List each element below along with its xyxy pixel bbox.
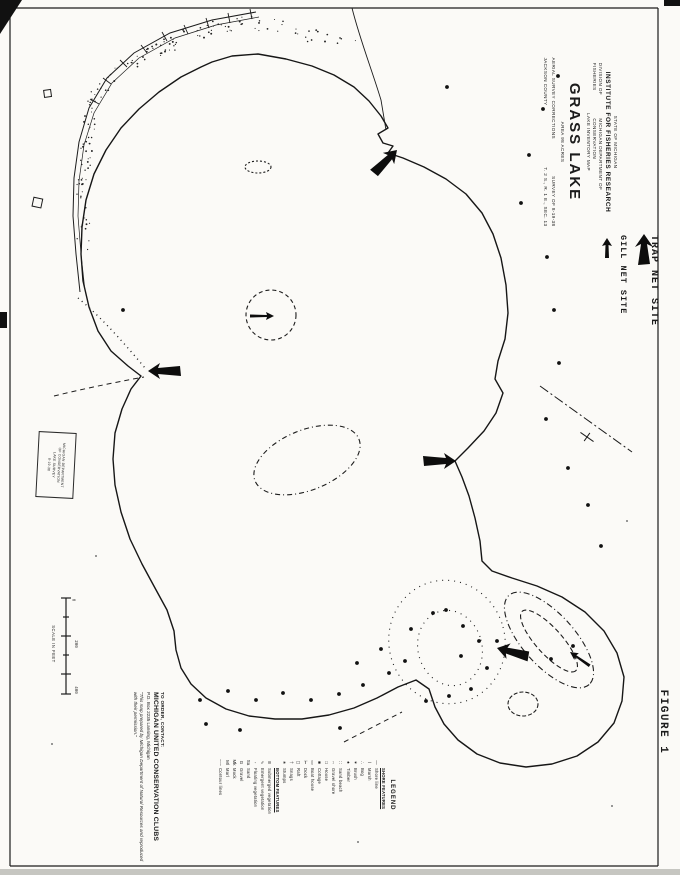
trap-net-arrow-1 — [368, 144, 403, 179]
legend-symbol: –·– — [217, 757, 224, 768]
section-line — [540, 386, 632, 452]
legend-item: ∷Sand beach — [337, 757, 344, 833]
legend-label: Bog — [359, 768, 366, 776]
legend-label: Snags — [288, 768, 295, 781]
stream-line — [352, 8, 386, 130]
legend-label: Marl — [224, 768, 231, 777]
legend-item: ∗Stumps — [281, 757, 288, 833]
legend-item: ■Cottage — [316, 757, 323, 833]
mucc-address: P.O. Box 2235 Lansing, Michigan — [146, 692, 151, 862]
legend-label: Contour lines — [217, 768, 224, 795]
dept2-line: MICHIGAN DEPARTMENT OF CONSERVATION — [591, 118, 603, 221]
trap-net-arrow-3 — [423, 453, 456, 469]
legend-label: Boat house — [309, 768, 316, 791]
gill-net-site-label: GILL NET SITE — [618, 235, 628, 314]
legend-symbol: ♠ — [344, 757, 351, 768]
legend-label: BOTTOM FEATURES — [274, 768, 281, 813]
legend-label: House — [323, 768, 330, 781]
legend-label: Submerged vegetation — [266, 768, 273, 814]
county-line: JACKSON COUNTY — [542, 58, 548, 106]
legend-item: ⊢Dock — [302, 757, 309, 833]
scale-label-400: 400 — [73, 686, 77, 694]
legend-item: BOTTOM FEATURES — [274, 757, 281, 833]
credit-note: "This map prepared by Michigan Departmen… — [133, 692, 144, 862]
mucc-name: MICHIGAN UNITED CONSERVATION CLUBS — [152, 692, 159, 862]
net-site-key: TRAP NET SITE GILL NET SITE — [599, 235, 661, 355]
depth-contours — [244, 161, 609, 717]
legend-item: †Snags — [288, 757, 295, 833]
figure-label: FIGURE 1 — [655, 686, 669, 758]
institute-line: INSTITUTE FOR FISHERIES RESEARCH — [603, 72, 612, 213]
legend-symbol: ■ — [316, 757, 323, 768]
legend-block: LEGEND SHORE FEATURES—Shore line⌇Marsh∴B… — [195, 757, 395, 833]
map-type-line: LAKE INVENTORY MAP — [585, 113, 591, 171]
legend-item: ▭Boat house — [309, 757, 316, 833]
trap-net-arrow-4 — [495, 640, 531, 664]
legend-item: MkMuck — [231, 757, 238, 833]
legend-label: Floating vegetation — [252, 768, 259, 807]
legend-symbol: ⌇ — [366, 757, 373, 768]
legend-symbol: Sa — [245, 757, 252, 768]
legend-symbol: † — [288, 757, 295, 768]
division-line: DIVISION OF FISHERIES — [591, 63, 603, 119]
legend-title: LEGEND — [389, 757, 395, 833]
legend-label: Raft — [295, 768, 302, 776]
legend-label: Emergent vegetation — [259, 768, 266, 810]
legend-symbol: ∷ — [337, 757, 344, 768]
legend-symbol: ⊢ — [302, 757, 309, 768]
order-block: TO ORDER, CONTACT: MICHIGAN UNITED CONSE… — [107, 692, 165, 862]
legend-label: Gravel — [238, 768, 245, 782]
legend-label: Timber — [344, 768, 351, 782]
legend-label: Muck — [231, 768, 238, 779]
area-line: AREA 98 ACRES — [559, 122, 565, 163]
dept-line: STATE OF MICHIGAN — [612, 116, 618, 169]
survey-stamp-box: MICHIGAN DEPARTMENTOF CONSERVATIONLAKE S… — [35, 431, 76, 499]
legend-item: ♠Timber — [344, 757, 351, 833]
legend-item: SaSand — [245, 757, 252, 833]
scale-bar — [61, 598, 71, 694]
stamp-line: 8-19-38 — [46, 458, 51, 471]
legend-symbol: ∴ — [359, 757, 366, 768]
scale-label-200: 200 — [73, 640, 77, 648]
legend-item: ∴Bog — [359, 757, 366, 833]
legend-item: –·–Contour lines — [217, 757, 224, 833]
township-line: T. 2 S., R. 1 E., SEC. 13 — [542, 167, 548, 226]
legend-symbol: ◦ — [252, 757, 259, 768]
survey-line-b: SURVEY OF 8-19-38 — [550, 176, 556, 226]
legend-item: ⌇Marsh — [366, 757, 373, 833]
trail-dashed-south — [344, 712, 402, 742]
trap-net-arrow-2 — [148, 363, 181, 379]
survey-line-a: AERIAL SURVEY CORRECTIONS — [550, 58, 556, 139]
legend-label: Sand beach — [337, 768, 344, 792]
legend-label: Dock — [302, 768, 309, 778]
legend-symbol: ◦◦ — [330, 757, 337, 768]
legend-symbol: Mk — [231, 757, 238, 768]
gill-net-arrow-2 — [568, 649, 592, 669]
trail-dashed — [54, 377, 144, 396]
scale-caption: SCALE IN FEET — [48, 622, 56, 666]
legend-item: GGravel — [238, 757, 245, 833]
legend-item: ◻Raft — [295, 757, 302, 833]
trail-dotted — [78, 298, 145, 368]
legend-label: Marsh — [366, 768, 373, 781]
legend-items: SHORE FEATURES—Shore line⌇Marsh∴Bog✶Brus… — [217, 757, 387, 833]
order-contact-line: TO ORDER, CONTACT: — [160, 692, 165, 862]
legend-item: ◦Floating vegetation — [252, 757, 259, 833]
legend-label: Shore line — [373, 768, 380, 789]
legend-item: MlMarl — [224, 757, 231, 833]
title-block: STATE OF MICHIGAN INSTITUTE FOR FISHERIE… — [526, 54, 618, 230]
trap-net-site-label: TRAP NET SITE — [648, 235, 659, 326]
legend-symbol: ◻ — [295, 757, 302, 768]
legend-label: Cottage — [316, 768, 323, 784]
legend-label: Brush — [352, 768, 359, 780]
legend-symbol: Ml — [224, 757, 231, 768]
legend-symbol: ∗ — [281, 757, 288, 768]
lake-name: GRASS LAKE — [566, 83, 583, 201]
legend-item: ✶Brush — [352, 757, 359, 833]
legend-symbol: □ — [323, 757, 330, 768]
benchmark-symbol — [578, 428, 597, 445]
legend-symbol: — — [373, 757, 380, 768]
legend-symbol: ▭ — [309, 757, 316, 768]
legend-symbol: G — [238, 757, 245, 768]
gill-net-arrow-1 — [250, 312, 274, 320]
legend-item: —Shore line — [373, 757, 380, 833]
legend-item: ≋Submerged vegetation — [266, 757, 273, 833]
legend-symbol: ∿ — [259, 757, 266, 768]
railroad-line — [73, 9, 259, 292]
legend-item: ∿Emergent vegetation — [259, 757, 266, 833]
scale-label-0: 0 — [70, 599, 74, 602]
legend-item: SHORE FEATURES — [380, 757, 387, 833]
legend-label: Stumps — [281, 768, 288, 783]
legend-item: ◦◦Gravel shore — [330, 757, 337, 833]
legend-item: □House — [323, 757, 330, 833]
legend-label: Gravel shore — [330, 768, 337, 794]
legend-label: SHORE FEATURES — [380, 768, 387, 809]
legend-symbol: ≋ — [266, 757, 273, 768]
legend-symbol: ✶ — [352, 757, 359, 768]
house-symbols — [32, 89, 51, 207]
legend-label: Sand — [245, 768, 252, 779]
scanned-lake-map-page: STATE OF MICHIGAN INSTITUTE FOR FISHERIE… — [0, 0, 680, 875]
